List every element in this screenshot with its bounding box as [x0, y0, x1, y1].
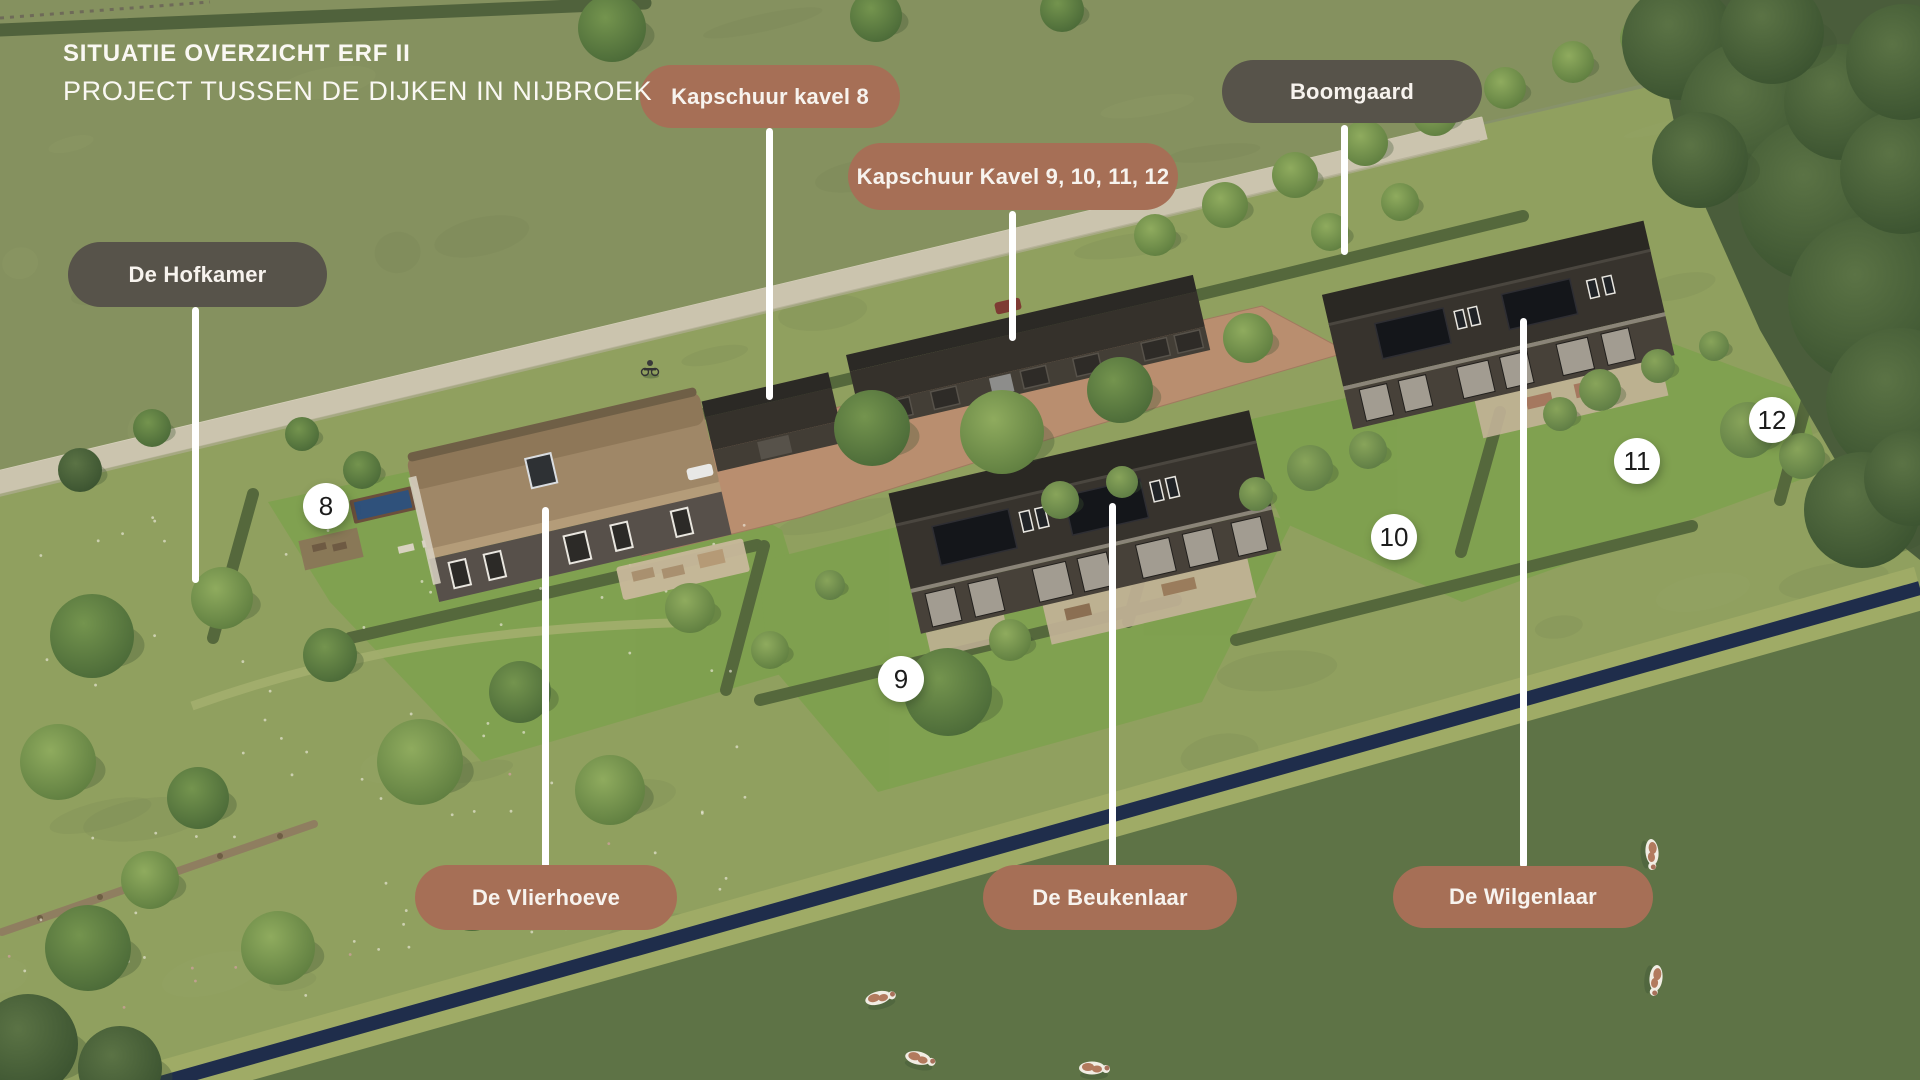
label-text: De Hofkamer	[129, 262, 267, 288]
label-text: De Beukenlaar	[1032, 885, 1187, 911]
leader-line-de-hofkamer	[192, 307, 199, 583]
label-boomgaard[interactable]: Boomgaard	[1222, 60, 1482, 123]
leader-line-kapschuur-kavel-8	[766, 128, 773, 400]
title-block: SITUATIE OVERZICHT ERF II PROJECT TUSSEN…	[63, 40, 652, 107]
marker-kavel-11[interactable]: 11	[1614, 438, 1660, 484]
marker-kavel-8[interactable]: 8	[303, 483, 349, 529]
label-de-vlierhoeve[interactable]: De Vlierhoeve	[415, 865, 677, 930]
page-title: SITUATIE OVERZICHT ERF II	[63, 40, 652, 68]
marker-number: 11	[1624, 446, 1651, 477]
leader-line-de-beukenlaar	[1109, 503, 1116, 868]
marker-number: 12	[1758, 405, 1787, 436]
label-text: Kapschuur kavel 8	[671, 84, 869, 110]
site-plan: SITUATIE OVERZICHT ERF II PROJECT TUSSEN…	[0, 0, 1920, 1080]
leader-line-de-wilgenlaar	[1520, 318, 1527, 868]
leader-line-boomgaard	[1341, 125, 1348, 255]
marker-kavel-9[interactable]: 9	[878, 656, 924, 702]
label-text: Boomgaard	[1290, 79, 1414, 105]
marker-number: 9	[894, 664, 908, 695]
label-de-hofkamer[interactable]: De Hofkamer	[68, 242, 327, 307]
marker-kavel-10[interactable]: 10	[1371, 514, 1417, 560]
label-de-wilgenlaar[interactable]: De Wilgenlaar	[1393, 866, 1653, 928]
marker-kavel-12[interactable]: 12	[1749, 397, 1795, 443]
label-text: Kapschuur Kavel 9, 10, 11, 12	[857, 164, 1170, 190]
label-de-beukenlaar[interactable]: De Beukenlaar	[983, 865, 1237, 930]
label-kapschuur-kavel-9-10-11-12[interactable]: Kapschuur Kavel 9, 10, 11, 12	[848, 143, 1178, 210]
marker-number: 10	[1380, 522, 1409, 553]
label-kapschuur-kavel-8[interactable]: Kapschuur kavel 8	[640, 65, 900, 128]
label-text: De Vlierhoeve	[472, 885, 620, 911]
marker-number: 8	[319, 491, 333, 522]
leader-line-kapschuur-kavel-9-10-11-12	[1009, 211, 1016, 341]
page-subtitle: PROJECT TUSSEN DE DIJKEN IN NIJBROEK	[63, 76, 652, 107]
label-text: De Wilgenlaar	[1449, 884, 1597, 910]
leader-line-de-vlierhoeve	[542, 507, 549, 868]
